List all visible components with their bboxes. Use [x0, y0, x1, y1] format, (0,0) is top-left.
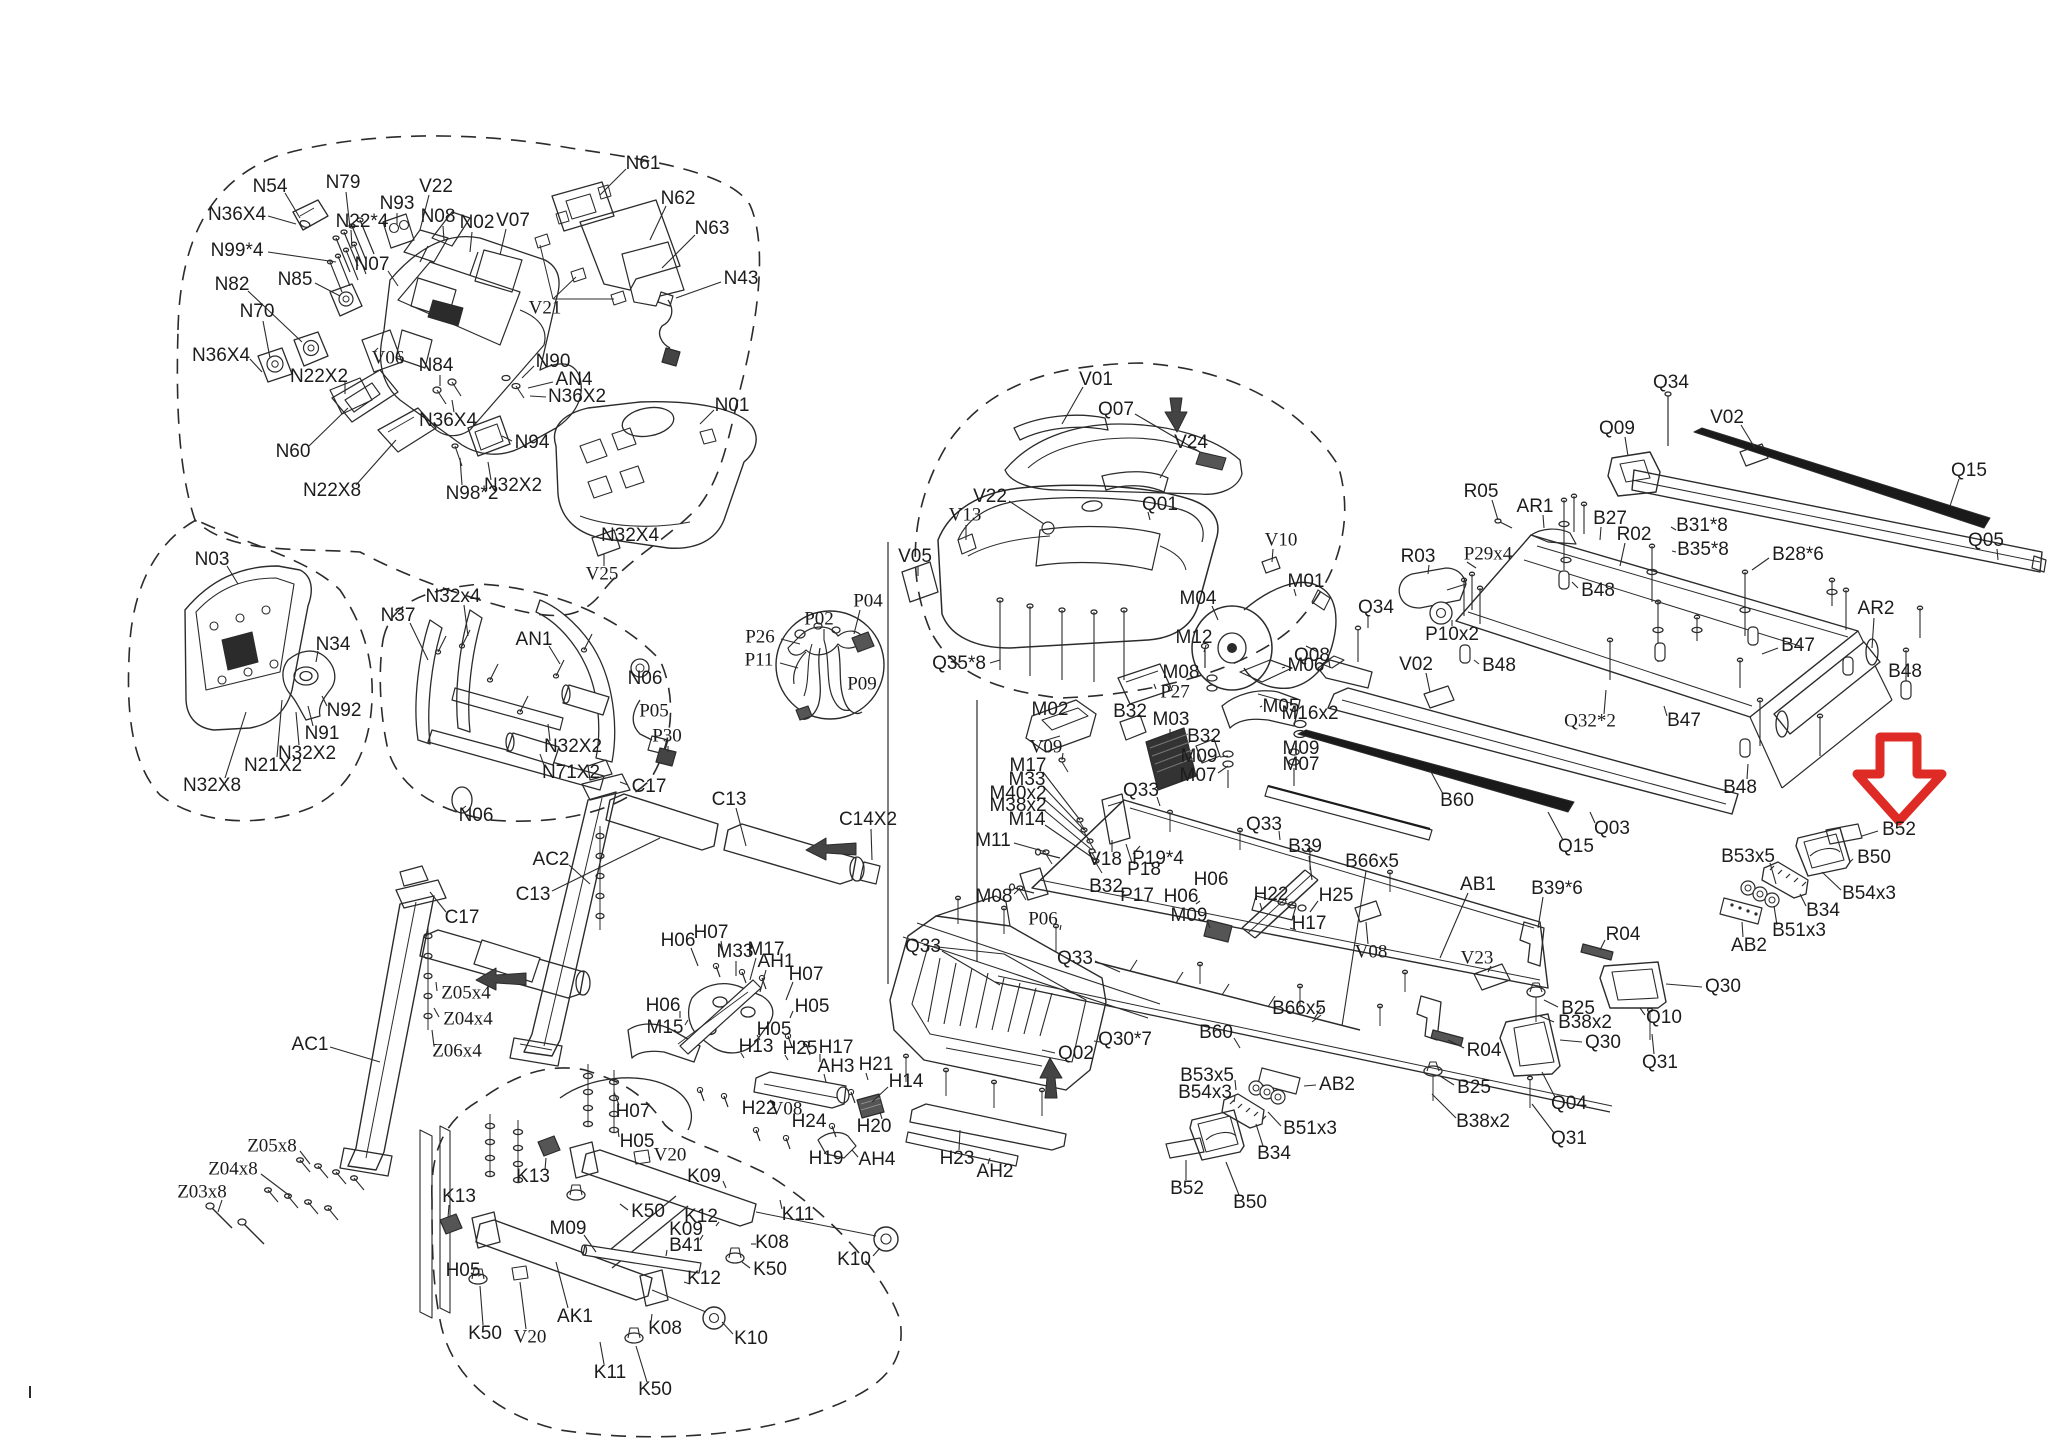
svg-text:M08: M08 [976, 886, 1013, 907]
svg-text:Q15: Q15 [1951, 460, 1987, 481]
svg-text:K50: K50 [468, 1323, 502, 1344]
svg-text:M03: M03 [1153, 709, 1190, 730]
svg-text:N36X2: N36X2 [548, 386, 606, 407]
svg-text:Z05x4: Z05x4 [441, 982, 491, 1003]
svg-text:N36X4: N36X4 [208, 204, 267, 225]
svg-text:N03: N03 [195, 549, 230, 570]
svg-text:N94: N94 [515, 432, 550, 453]
svg-text:C17: C17 [632, 776, 667, 797]
svg-text:M04: M04 [1180, 588, 1217, 609]
svg-text:Q30: Q30 [1705, 976, 1741, 997]
svg-text:M11: M11 [975, 830, 1011, 851]
svg-text:B52: B52 [1170, 1178, 1204, 1199]
svg-text:H06: H06 [646, 995, 681, 1016]
svg-text:M06: M06 [1288, 655, 1325, 676]
svg-text:H07: H07 [616, 1101, 651, 1122]
svg-text:N08: N08 [421, 206, 456, 227]
svg-text:V01: V01 [1079, 369, 1113, 390]
svg-text:H07: H07 [789, 964, 824, 985]
svg-text:V20: V20 [654, 1144, 687, 1165]
svg-text:B48: B48 [1482, 655, 1516, 676]
svg-text:R04: R04 [1467, 1040, 1502, 1061]
svg-text:M09: M09 [550, 1218, 587, 1239]
svg-text:N32x4: N32x4 [426, 586, 481, 607]
svg-text:B51x3: B51x3 [1772, 920, 1826, 941]
svg-text:N60: N60 [276, 441, 311, 462]
svg-text:V05: V05 [898, 546, 932, 567]
svg-text:P02: P02 [804, 608, 834, 629]
svg-text:N06: N06 [459, 805, 494, 826]
svg-text:N32X8: N32X8 [183, 775, 241, 796]
svg-text:N62: N62 [661, 188, 696, 209]
svg-text:B60: B60 [1440, 790, 1474, 811]
svg-text:K10: K10 [734, 1328, 768, 1349]
svg-text:R02: R02 [1617, 524, 1652, 545]
svg-text:N02: N02 [460, 212, 495, 233]
svg-text:B53x5: B53x5 [1721, 846, 1775, 867]
svg-text:Q01: Q01 [1142, 494, 1178, 515]
svg-text:N82: N82 [215, 274, 250, 295]
svg-text:B66x5: B66x5 [1272, 998, 1326, 1019]
svg-text:Q34: Q34 [1653, 372, 1689, 393]
svg-text:B51x3: B51x3 [1283, 1118, 1337, 1139]
svg-text:N36X4: N36X4 [192, 345, 251, 366]
svg-text:Q04: Q04 [1551, 1093, 1587, 1114]
svg-text:N43: N43 [724, 268, 759, 289]
svg-text:K08: K08 [755, 1232, 789, 1253]
svg-text:V24: V24 [1174, 432, 1208, 453]
svg-text:Q02: Q02 [1058, 1043, 1094, 1064]
svg-text:P10x2: P10x2 [1425, 624, 1479, 645]
svg-text:H14: H14 [889, 1071, 924, 1092]
svg-text:C13: C13 [712, 789, 747, 810]
svg-text:H13: H13 [739, 1036, 774, 1057]
svg-text:Z05x8: Z05x8 [247, 1135, 297, 1156]
svg-text:P27: P27 [1160, 681, 1190, 702]
svg-text:Q10: Q10 [1646, 1007, 1682, 1028]
svg-text:Z04x8: Z04x8 [208, 1158, 258, 1179]
svg-text:B32: B32 [1187, 726, 1221, 747]
svg-text:Q33: Q33 [905, 936, 941, 957]
svg-text:P19*4: P19*4 [1132, 848, 1184, 869]
svg-text:B50: B50 [1857, 847, 1891, 868]
svg-text:M09: M09 [1181, 746, 1218, 767]
svg-text:B47: B47 [1667, 710, 1701, 731]
svg-text:V10: V10 [1265, 529, 1298, 550]
svg-text:N70: N70 [240, 301, 275, 322]
svg-text:K09: K09 [687, 1166, 721, 1187]
svg-text:M12: M12 [1176, 627, 1213, 648]
svg-text:M08: M08 [1163, 662, 1200, 683]
svg-text:V21: V21 [529, 297, 562, 318]
svg-text:N21X2: N21X2 [244, 755, 302, 776]
svg-text:B32: B32 [1113, 701, 1147, 722]
svg-text:Q34: Q34 [1358, 597, 1394, 618]
svg-text:H17: H17 [819, 1037, 854, 1058]
svg-text:M16x2: M16x2 [1281, 703, 1338, 724]
svg-text:P29x4: P29x4 [1464, 543, 1513, 564]
svg-text:N01: N01 [715, 395, 750, 416]
svg-text:H24: H24 [792, 1111, 827, 1132]
svg-text:K50: K50 [638, 1379, 672, 1400]
svg-text:B66x5: B66x5 [1345, 851, 1399, 872]
svg-text:N99*4: N99*4 [211, 240, 264, 261]
svg-text:H17: H17 [1292, 913, 1327, 934]
svg-text:N85: N85 [278, 269, 313, 290]
svg-text:P09: P09 [847, 673, 877, 694]
svg-text:M02: M02 [1032, 699, 1069, 720]
svg-text:B35*8: B35*8 [1677, 539, 1729, 560]
svg-text:N84: N84 [419, 355, 454, 376]
svg-text:Z04x4: Z04x4 [443, 1008, 493, 1029]
svg-text:AB2: AB2 [1731, 935, 1767, 956]
svg-text:R03: R03 [1401, 546, 1436, 567]
svg-text:B38x2: B38x2 [1456, 1111, 1510, 1132]
svg-text:V06: V06 [372, 347, 405, 368]
svg-text:H05: H05 [446, 1260, 481, 1281]
svg-text:K11: K11 [782, 1204, 814, 1225]
svg-text:V25: V25 [586, 563, 619, 584]
svg-text:N92: N92 [327, 700, 362, 721]
svg-text:P05: P05 [639, 700, 669, 721]
svg-text:K11: K11 [594, 1362, 626, 1383]
svg-text:H20: H20 [857, 1116, 892, 1137]
svg-text:V18: V18 [1088, 849, 1122, 870]
svg-text:Z06x4: Z06x4 [432, 1040, 482, 1061]
svg-text:P06: P06 [1028, 908, 1058, 929]
svg-text:N32X2: N32X2 [544, 736, 602, 757]
svg-text:P30: P30 [652, 725, 682, 746]
svg-text:M14: M14 [1009, 809, 1046, 830]
svg-text:AB2: AB2 [1319, 1074, 1355, 1095]
svg-text:V13: V13 [949, 504, 982, 525]
svg-text:AC1: AC1 [292, 1034, 329, 1055]
svg-text:N71X2: N71X2 [542, 762, 600, 783]
svg-text:C13: C13 [516, 884, 551, 905]
svg-text:B39: B39 [1288, 836, 1322, 857]
svg-text:Q07: Q07 [1098, 399, 1134, 420]
svg-text:P26: P26 [745, 626, 775, 647]
svg-text:B48: B48 [1581, 580, 1615, 601]
svg-text:B47: B47 [1781, 635, 1815, 656]
svg-text:H23: H23 [940, 1148, 975, 1169]
svg-text:Q03: Q03 [1594, 818, 1630, 839]
svg-text:V22: V22 [419, 176, 453, 197]
svg-text:Q31: Q31 [1642, 1052, 1678, 1073]
svg-text:AR2: AR2 [1858, 598, 1895, 619]
svg-text:B48: B48 [1888, 661, 1922, 682]
svg-text:N22X2: N22X2 [290, 366, 348, 387]
svg-text:H05: H05 [620, 1131, 655, 1152]
svg-text:Q33: Q33 [1123, 780, 1159, 801]
svg-text:Q15: Q15 [1558, 836, 1594, 857]
svg-text:M01: M01 [1288, 571, 1325, 592]
svg-text:AH3: AH3 [818, 1056, 855, 1077]
svg-text:AN1: AN1 [516, 629, 553, 650]
svg-text:Q35*8: Q35*8 [932, 653, 986, 674]
svg-text:P17: P17 [1120, 885, 1154, 906]
svg-text:C17: C17 [445, 907, 480, 928]
svg-text:Q32*2: Q32*2 [1564, 710, 1616, 731]
svg-text:N63: N63 [695, 218, 730, 239]
svg-text:AB1: AB1 [1460, 874, 1496, 895]
svg-text:N22X8: N22X8 [303, 480, 361, 501]
svg-text:Z03x8: Z03x8 [177, 1181, 227, 1202]
svg-text:N07: N07 [355, 254, 390, 275]
svg-text:K12: K12 [687, 1268, 721, 1289]
svg-text:H06: H06 [1194, 869, 1229, 890]
svg-text:Q30: Q30 [1585, 1032, 1621, 1053]
svg-text:H07: H07 [694, 922, 729, 943]
svg-text:Q05: Q05 [1968, 530, 2004, 551]
svg-text:N06: N06 [628, 668, 663, 689]
svg-text:B52: B52 [1882, 819, 1916, 840]
svg-text:V23: V23 [1461, 947, 1494, 968]
svg-text:AH2: AH2 [977, 1161, 1014, 1182]
svg-text:M15: M15 [647, 1017, 684, 1038]
svg-text:H25: H25 [1319, 885, 1354, 906]
svg-text:K50: K50 [631, 1201, 665, 1222]
svg-text:R05: R05 [1464, 481, 1499, 502]
svg-text:P11: P11 [745, 649, 774, 670]
svg-text:AK1: AK1 [557, 1306, 593, 1327]
svg-text:M07: M07 [1283, 754, 1320, 775]
svg-text:V20: V20 [514, 1326, 547, 1347]
svg-text:B31*8: B31*8 [1676, 515, 1728, 536]
svg-text:N91: N91 [305, 723, 340, 744]
svg-text:B60: B60 [1199, 1022, 1233, 1043]
svg-text:K50: K50 [753, 1259, 787, 1280]
svg-text:V08: V08 [1355, 941, 1388, 962]
svg-text:B48: B48 [1723, 777, 1757, 798]
svg-text:AH4: AH4 [859, 1149, 896, 1170]
svg-text:M07: M07 [1180, 765, 1217, 786]
svg-text:R04: R04 [1606, 924, 1641, 945]
svg-text:B39*6: B39*6 [1531, 878, 1583, 899]
svg-text:B38x2: B38x2 [1558, 1012, 1612, 1033]
svg-text:N34: N34 [316, 634, 351, 655]
svg-text:N61: N61 [626, 153, 661, 174]
svg-text:K13: K13 [516, 1166, 550, 1187]
svg-text:B28*6: B28*6 [1772, 544, 1824, 565]
svg-text:B50: B50 [1233, 1192, 1267, 1213]
svg-text:H22: H22 [1254, 884, 1289, 905]
svg-text:H06: H06 [661, 930, 696, 951]
svg-text:B25: B25 [1457, 1077, 1491, 1098]
svg-text:B54x3: B54x3 [1842, 883, 1896, 904]
svg-text:K13: K13 [442, 1186, 476, 1207]
svg-text:H25: H25 [783, 1038, 818, 1059]
svg-text:V07: V07 [496, 210, 530, 231]
svg-text:N79: N79 [326, 172, 361, 193]
svg-text:AR1: AR1 [1517, 496, 1554, 517]
svg-text:N32X4: N32X4 [601, 525, 660, 546]
svg-text:B32: B32 [1089, 876, 1123, 897]
svg-text:B34: B34 [1806, 900, 1840, 921]
svg-text:B54x3: B54x3 [1178, 1082, 1232, 1103]
svg-text:M09: M09 [1171, 905, 1208, 926]
svg-text:Q31: Q31 [1551, 1128, 1587, 1149]
svg-text:H19: H19 [809, 1148, 844, 1169]
svg-text:Q09: Q09 [1599, 418, 1635, 439]
svg-text:V02: V02 [1399, 654, 1433, 675]
svg-text:N37: N37 [381, 605, 416, 626]
svg-text:B34: B34 [1257, 1143, 1291, 1164]
svg-text:N54: N54 [253, 176, 288, 197]
svg-text:Q30*7: Q30*7 [1098, 1029, 1152, 1050]
svg-text:H05: H05 [795, 996, 830, 1017]
svg-text:AC2: AC2 [533, 849, 570, 870]
svg-text:B41: B41 [669, 1235, 703, 1256]
svg-text:K10: K10 [837, 1249, 871, 1270]
svg-text:N22*4: N22*4 [336, 211, 389, 232]
svg-text:Q33: Q33 [1246, 814, 1282, 835]
svg-text:N32X2: N32X2 [484, 475, 542, 496]
svg-text:N36X4: N36X4 [419, 410, 478, 431]
svg-text:Q33: Q33 [1057, 948, 1093, 969]
svg-text:K08: K08 [648, 1318, 682, 1339]
svg-text:V02: V02 [1710, 407, 1744, 428]
svg-text:C14X2: C14X2 [839, 809, 897, 830]
svg-text:P04: P04 [853, 590, 883, 611]
